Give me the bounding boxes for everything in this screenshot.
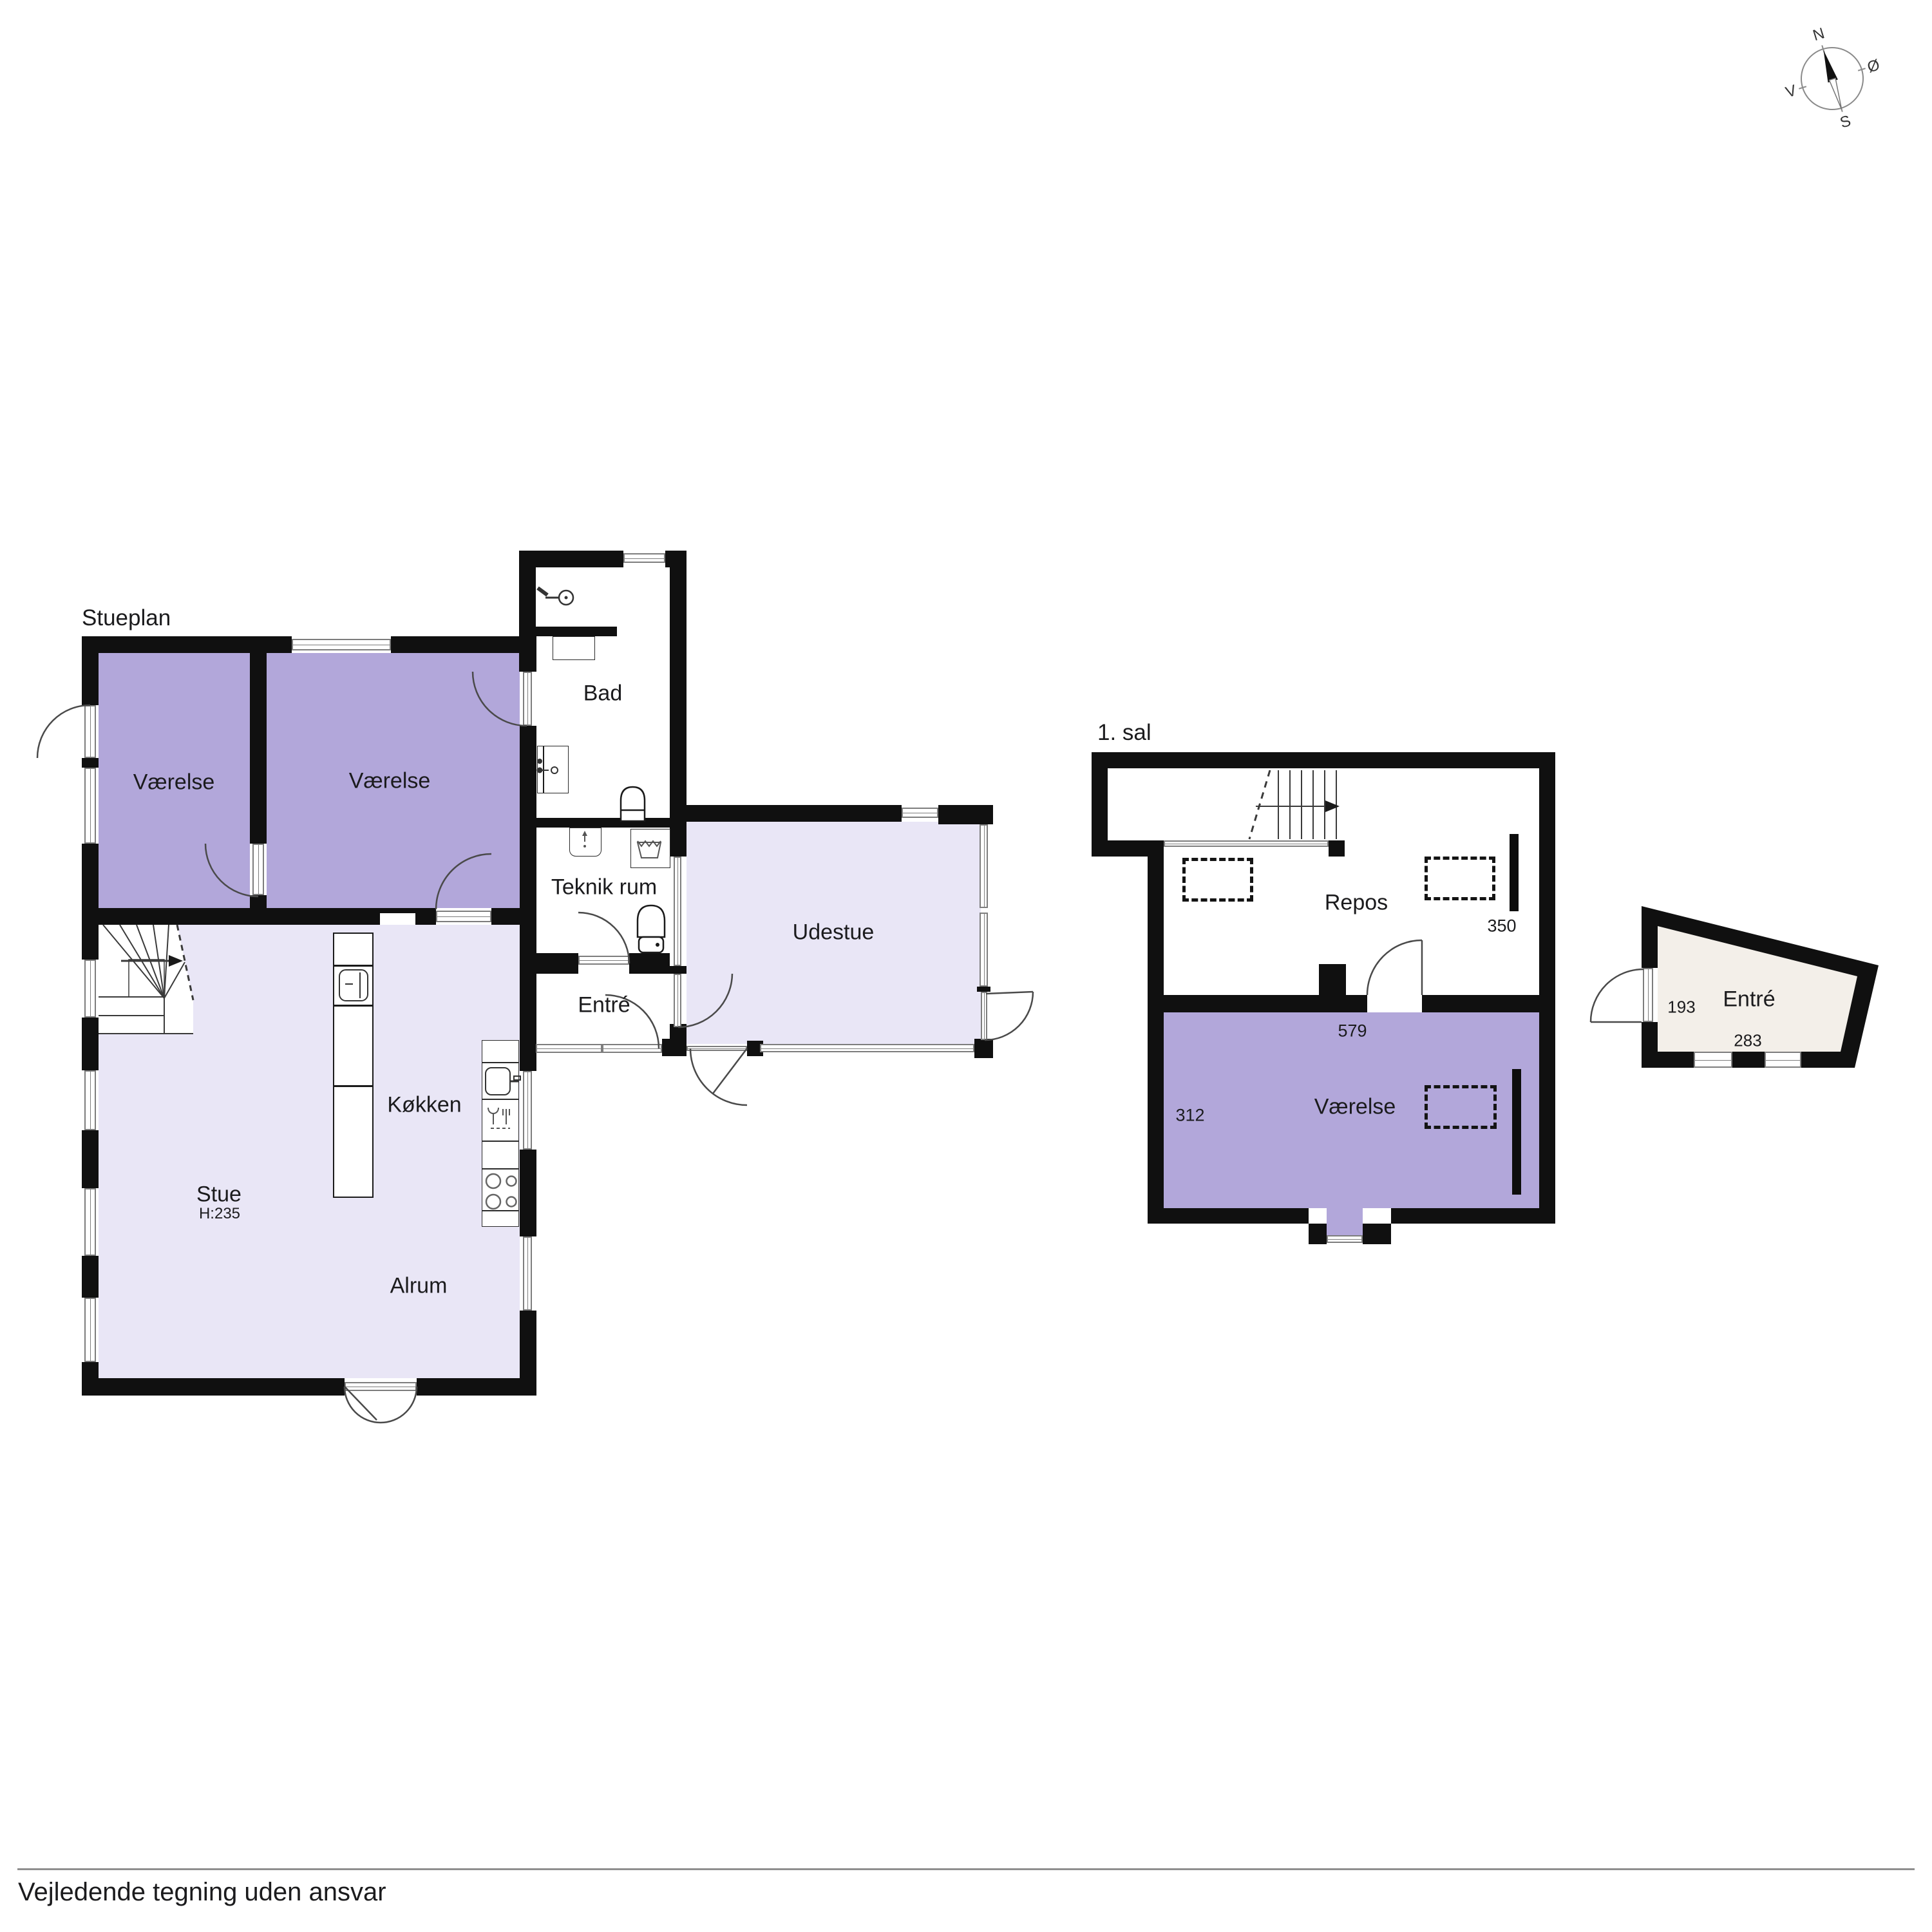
washer-icon (582, 831, 587, 848)
room-label-entre: Entré (578, 993, 630, 1018)
stove-icon (486, 1174, 516, 1209)
floorplan-page: { "page": { "footer": "Vejledende tegnin… (0, 0, 1932, 1932)
first-floor-title: 1. sal (1097, 720, 1151, 746)
dim-312: 312 (1175, 1106, 1204, 1126)
sink-dots (537, 759, 558, 774)
toilet-icon-bad (621, 787, 645, 821)
room-label-vaerelse-1sal: Værelse (1314, 1095, 1396, 1120)
room-label-vaerelse-right: Værelse (349, 769, 431, 794)
sink-icon (486, 1068, 520, 1095)
room-label-stue: Stue (196, 1182, 241, 1207)
room-label-bad: Bad (583, 681, 623, 706)
shower-icon (538, 588, 573, 605)
room-label-teknik: Teknik rum (551, 875, 657, 900)
room-label-koekken: Køkken (387, 1093, 461, 1118)
room-label-repos: Repos (1325, 891, 1388, 916)
fridge-icon (339, 970, 368, 1001)
footer-disclaimer: Vejledende tegning uden ansvar (18, 1878, 386, 1907)
room-label-udestue: Udestue (793, 920, 875, 945)
room-label-alrum: Alrum (390, 1274, 448, 1299)
room-label-annex-entre: Entré (1723, 987, 1775, 1012)
footer-divider (17, 1868, 1915, 1870)
dim-579: 579 (1338, 1021, 1367, 1041)
ground-floor-title: Stueplan (82, 605, 171, 631)
dim-283: 283 (1734, 1031, 1761, 1051)
room-height-stue: H:235 (199, 1205, 240, 1223)
laundry-tub-icon (638, 841, 661, 858)
room-label-vaerelse-left: Værelse (133, 770, 215, 795)
stairs-ground (99, 925, 193, 1034)
stairs-first-floor (1249, 770, 1340, 839)
dim-193: 193 (1667, 998, 1695, 1018)
dim-350: 350 (1487, 916, 1516, 936)
door-arcs (37, 672, 1643, 1423)
dishwasher-icon (488, 1108, 510, 1128)
plan-annotations (0, 0, 1932, 1932)
toilet-icon-teknik (638, 905, 665, 952)
